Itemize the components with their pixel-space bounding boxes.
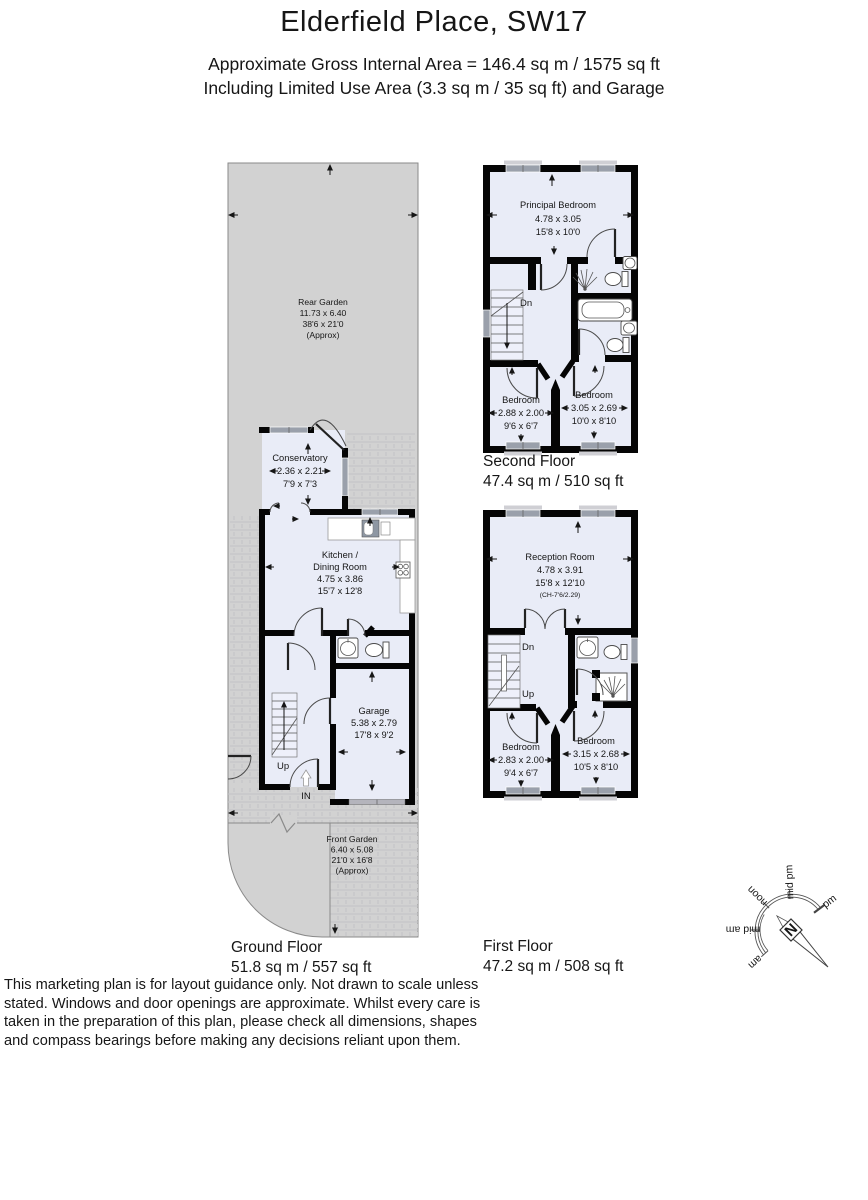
bedroom-divider-wall xyxy=(551,379,560,452)
floor-area: 47.2 sq m / 508 sq ft xyxy=(483,957,623,977)
disclaimer-line: This marketing plan is for layout guidan… xyxy=(4,976,524,995)
room-name: Reception Room xyxy=(525,552,595,562)
room-dim-metric: 6.40 x 5.08 xyxy=(331,845,374,855)
room-dim-metric: 4.75 x 3.86 xyxy=(317,574,363,584)
room-name: Bedroom xyxy=(502,395,540,405)
room-dim-imperial: 15'8 x 12'10 xyxy=(535,578,585,588)
room-dim-metric: 2.83 x 2.00 xyxy=(498,755,544,765)
shower-icon xyxy=(592,670,627,701)
room-dim-metric: 11.73 x 6.40 xyxy=(300,308,347,318)
room-name: Conservatory xyxy=(272,453,328,463)
room-name: Bedroom xyxy=(502,742,540,752)
room-dim-metric: 5.38 x 2.79 xyxy=(351,718,397,728)
floor-name: Ground Floor xyxy=(231,938,371,958)
ceiling-height-label: (CH-7'6/2.29) xyxy=(540,592,581,599)
room-dim-imperial: 21'0 x 16'8 xyxy=(331,855,372,865)
room-name: Garage xyxy=(358,706,389,716)
window xyxy=(342,458,348,496)
disclaimer: This marketing plan is for layout guidan… xyxy=(4,976,524,1051)
hob-icon xyxy=(396,562,410,578)
toilet-icon xyxy=(605,272,628,287)
sink-icon xyxy=(623,257,637,270)
ground-floor-caption: Ground Floor 51.8 sq m / 557 sq ft xyxy=(231,938,371,979)
disclaimer-line: and compass bearings before making any d… xyxy=(4,1032,524,1051)
disclaimer-line: taken in the preparation of this plan, p… xyxy=(4,1013,524,1032)
room-dim-imperial: 15'8 x 10'0 xyxy=(536,227,580,237)
second-floor-plan: Principal Bedroom 4.78 x 3.05 15'8 x 10'… xyxy=(475,158,645,458)
room-dim-imperial: 38'6 x 21'0 xyxy=(302,319,343,329)
sink-icon xyxy=(338,638,358,658)
first-floor-caption: First Floor 47.2 sq m / 508 sq ft xyxy=(483,937,623,978)
down-label: Dn xyxy=(520,298,532,309)
compass: N am mid am noon mid pm pm xyxy=(713,848,865,998)
room-dim-metric: 4.78 x 3.05 xyxy=(535,214,581,224)
first-floor-plan: Reception Room 4.78 x 3.91 15'8 x 12'10 … xyxy=(475,503,645,803)
floor-name: Second Floor xyxy=(483,452,623,472)
north-needle: N xyxy=(777,916,828,967)
time-mid-pm: mid pm xyxy=(783,864,796,899)
toilet-icon xyxy=(604,645,627,660)
room-approx: (Approx) xyxy=(336,866,369,876)
room-dim-imperial: 9'4 x 6'7 xyxy=(504,768,538,778)
up-label: Up xyxy=(522,689,534,700)
up-label: Up xyxy=(277,761,289,772)
in-label: IN xyxy=(301,791,311,802)
bathtub-icon xyxy=(578,299,632,321)
page-title: Elderfield Place, SW17 xyxy=(0,6,868,39)
room-approx: (Approx) xyxy=(307,330,340,340)
room-dim-metric: 2.36 x 2.21 xyxy=(277,466,323,476)
room-name: Bedroom xyxy=(577,736,615,746)
time-noon: noon xyxy=(745,883,770,908)
room-name: Rear Garden xyxy=(298,297,348,307)
limited-use-line: Including Limited Use Area (3.3 sq m / 3… xyxy=(0,76,868,100)
room-dim-imperial: 9'6 x 6'7 xyxy=(504,421,538,431)
ground-floor-plan: Rear Garden 11.73 x 6.40 38'6 x 21'0 (Ap… xyxy=(222,158,422,948)
boundary-break xyxy=(270,815,297,830)
gross-area-line: Approximate Gross Internal Area = 146.4 … xyxy=(0,52,868,76)
room-dim-metric: 3.05 x 2.69 xyxy=(571,403,617,413)
time-am: am xyxy=(745,952,764,971)
floor-area: 47.4 sq m / 510 sq ft xyxy=(483,472,623,492)
room-dim-metric: 3.15 x 2.68 xyxy=(573,749,619,759)
room-name: Principal Bedroom xyxy=(520,200,596,210)
room-dim-imperial: 10'0 x 8'10 xyxy=(572,416,616,426)
room-dim-imperial: 17'8 x 9'2 xyxy=(354,730,393,740)
toilet-icon xyxy=(366,642,390,658)
disclaimer-line: stated. Windows and door openings are ap… xyxy=(4,995,524,1014)
sink-icon xyxy=(621,321,637,335)
room-dim-imperial: 7'9 x 7'3 xyxy=(283,479,317,489)
time-pm: pm xyxy=(820,892,839,911)
room-dim-metric: 2.88 x 2.00 xyxy=(498,408,544,418)
room-dim-imperial: 10'5 x 8'10 xyxy=(574,762,618,772)
floor-name: First Floor xyxy=(483,937,623,957)
room-name: Bedroom xyxy=(575,390,613,400)
sink-icon xyxy=(577,637,598,658)
room-name: Dining Room xyxy=(313,562,367,572)
room-name: Front Garden xyxy=(326,834,377,844)
header: Elderfield Place, SW17 Approximate Gross… xyxy=(0,6,868,100)
second-floor-caption: Second Floor 47.4 sq m / 510 sq ft xyxy=(483,452,623,493)
down-label: Dn xyxy=(522,642,534,653)
time-mid-am: mid am xyxy=(726,924,761,936)
toilet-icon xyxy=(607,338,629,353)
room-name: Kitchen / xyxy=(322,550,359,560)
room-dim-metric: 4.78 x 3.91 xyxy=(537,565,583,575)
room-dim-imperial: 15'7 x 12'8 xyxy=(318,586,362,596)
time-labels: am mid am noon mid pm pm xyxy=(726,864,840,971)
